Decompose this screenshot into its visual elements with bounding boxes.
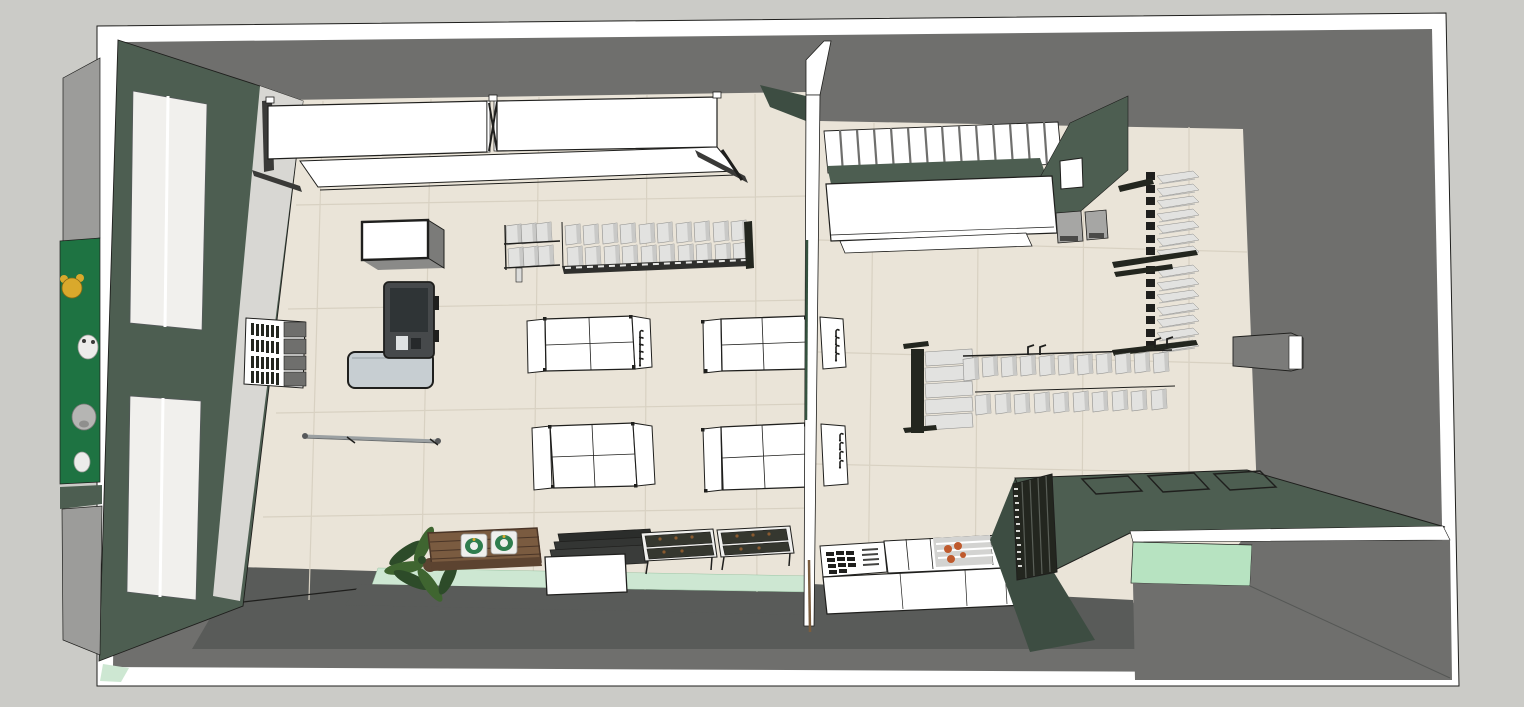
partition-base — [809, 560, 810, 632]
display-rack-vertical — [903, 341, 973, 433]
product-sack — [461, 534, 487, 557]
ceiling-lightbox-2 — [497, 97, 717, 151]
mascot-bunny — [74, 452, 90, 472]
ceiling-lightbox-1 — [268, 101, 487, 159]
wall-mounted-box — [1233, 333, 1303, 371]
partition-green-edge — [806, 240, 807, 420]
product-sack — [491, 531, 517, 554]
white-display-box — [545, 554, 627, 595]
gondola-shelf-1 — [527, 315, 652, 373]
register-keypad — [396, 336, 408, 350]
ceiling-lightboxes — [252, 92, 748, 192]
exterior-facade — [60, 58, 102, 655]
wall-box-display — [362, 220, 444, 270]
wall-product-shelf — [244, 318, 306, 388]
render-viewport — [0, 0, 1524, 707]
counter-mint-panel — [1131, 542, 1252, 586]
store-3d-render — [0, 0, 1524, 707]
gondola-shelf-3 — [532, 422, 655, 490]
gondola-shelf-2 — [701, 316, 846, 373]
wooden-bench — [428, 528, 542, 571]
slat-rack — [1013, 474, 1057, 580]
exterior-panel-upper — [63, 58, 100, 243]
exterior-panel-lower — [62, 506, 102, 655]
soffit-end-cube — [1060, 158, 1083, 189]
mascot-bear — [62, 278, 82, 298]
table-leg — [516, 268, 522, 282]
shelf-side-boxes — [284, 322, 306, 386]
register-screen — [390, 288, 428, 332]
gondola-shelf-4 — [701, 423, 848, 493]
mascot-panda — [78, 335, 98, 359]
register-drawer — [411, 338, 421, 349]
